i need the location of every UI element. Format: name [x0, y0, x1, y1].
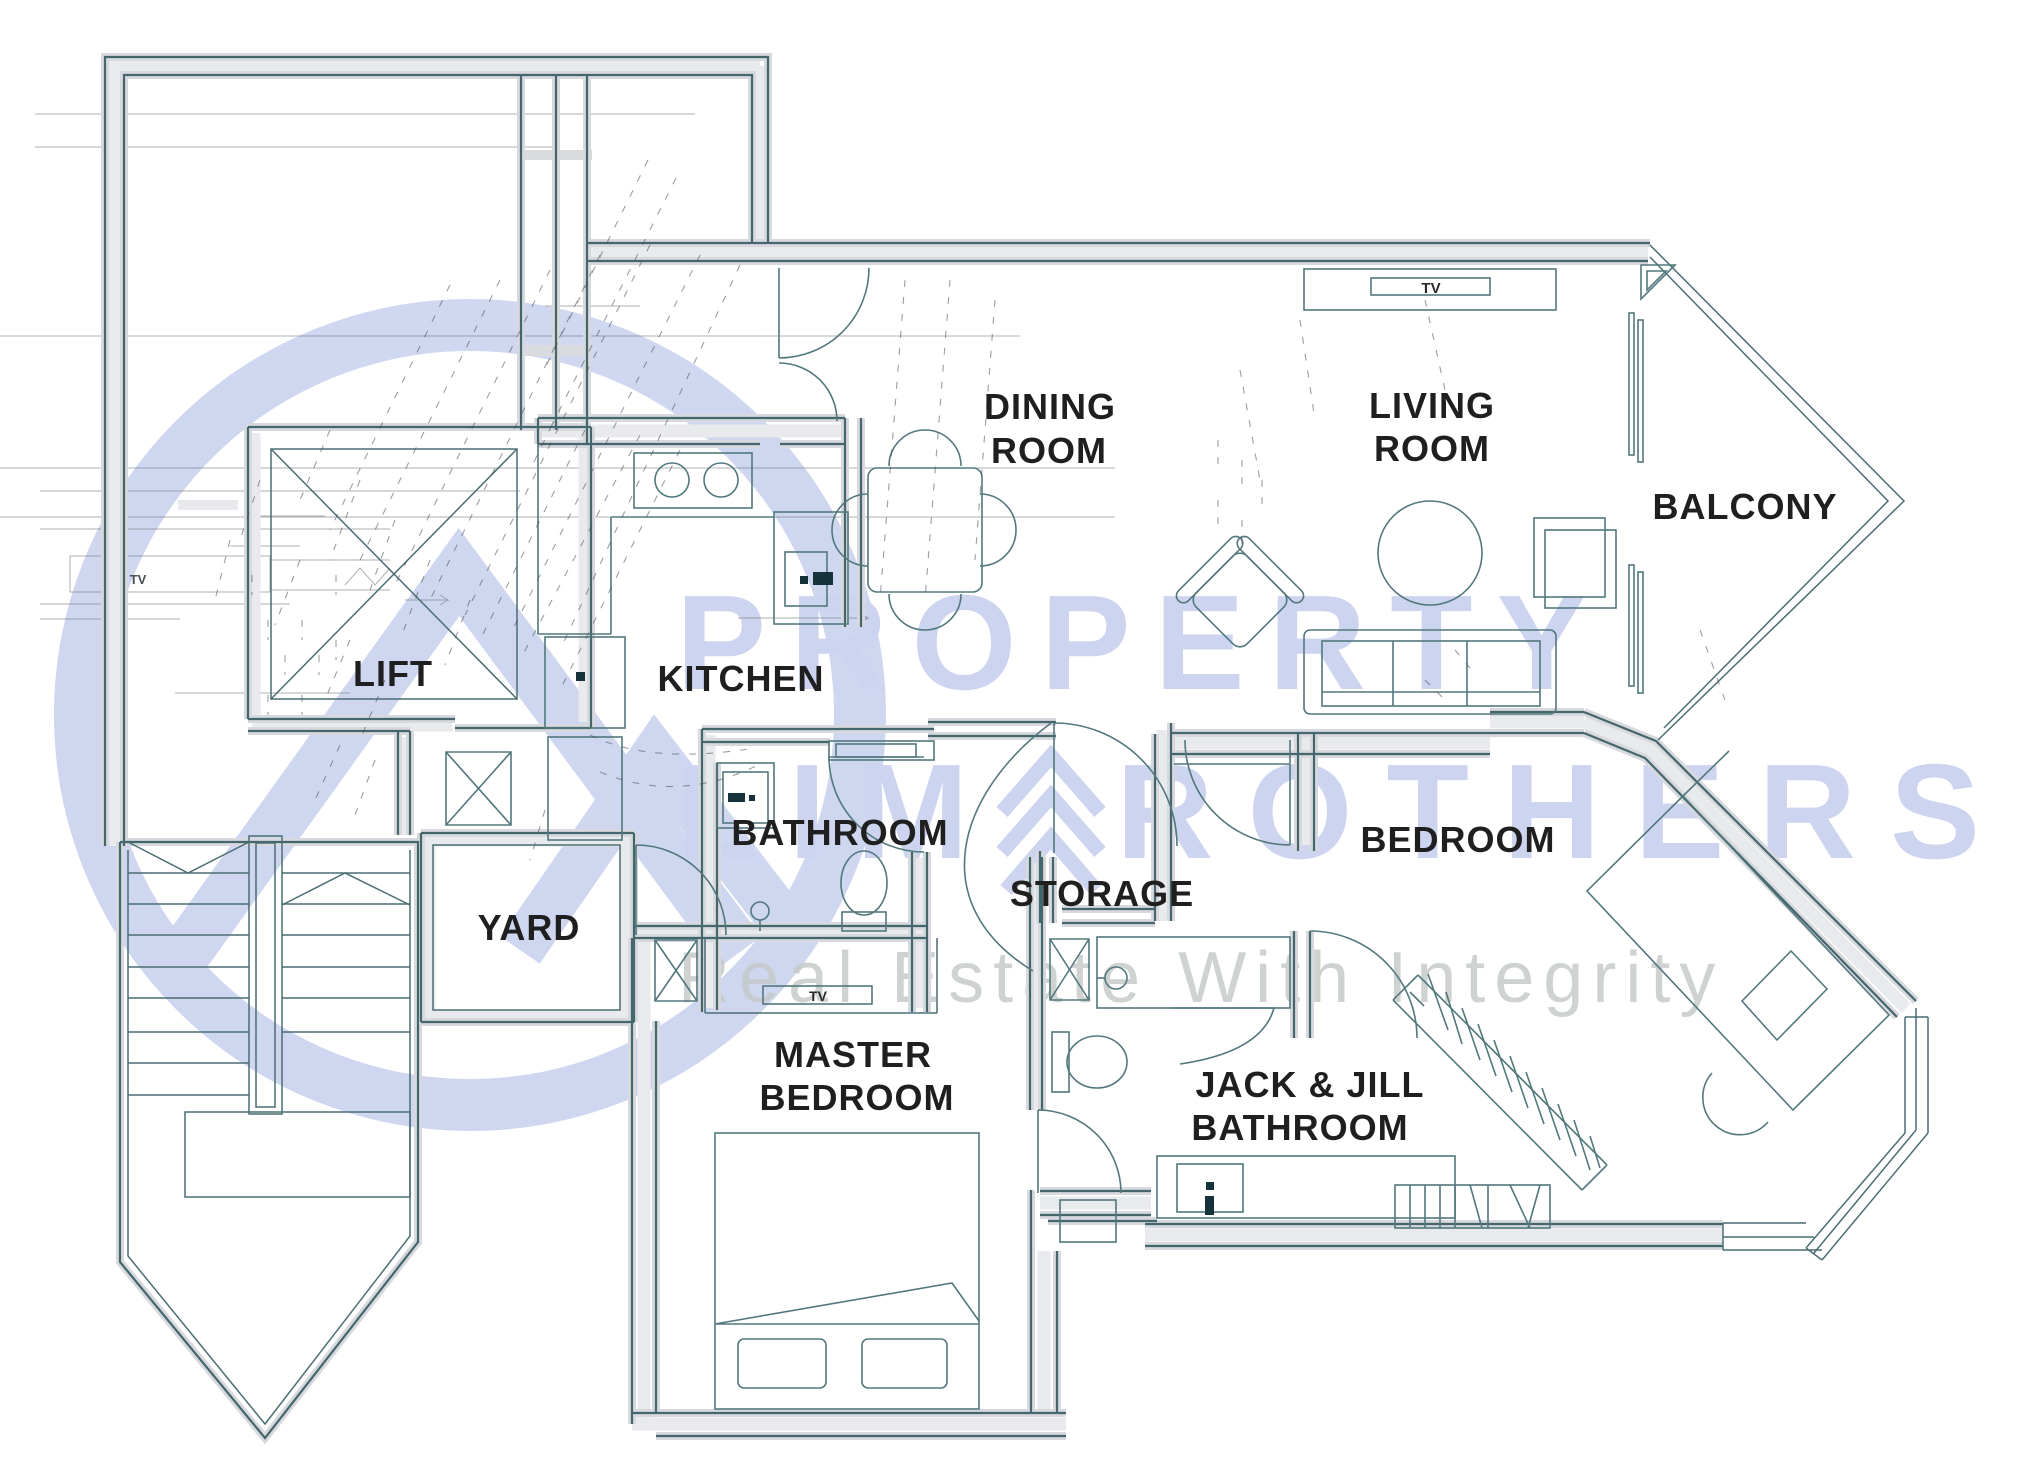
svg-text:TV: TV: [130, 572, 147, 587]
svg-text:ROOM: ROOM: [1374, 428, 1490, 469]
svg-text:LIFT: LIFT: [353, 653, 433, 694]
svg-text:JACK & JILL: JACK & JILL: [1195, 1064, 1424, 1105]
svg-text:LIVING: LIVING: [1369, 385, 1495, 426]
svg-text:STORAGE: STORAGE: [1010, 873, 1194, 914]
svg-text:MASTER: MASTER: [774, 1034, 932, 1075]
svg-text:TV: TV: [809, 988, 828, 1004]
svg-text:BEDROOM: BEDROOM: [1361, 819, 1556, 860]
svg-text:BALCONY: BALCONY: [1653, 486, 1838, 527]
svg-text:ROTHERS: ROTHERS: [1116, 736, 2014, 887]
svg-text:DINING: DINING: [984, 386, 1116, 427]
svg-text:BATHROOM: BATHROOM: [1191, 1107, 1408, 1148]
svg-text:ROOM: ROOM: [991, 430, 1107, 471]
svg-text:Real Estate With Integrity: Real Estate With Integrity: [678, 938, 1724, 1018]
svg-text:BATHROOM: BATHROOM: [731, 812, 948, 853]
svg-text:TV: TV: [1421, 280, 1440, 297]
svg-text:BEDROOM: BEDROOM: [760, 1077, 955, 1118]
svg-text:YARD: YARD: [478, 907, 581, 948]
svg-text:KITCHEN: KITCHEN: [658, 658, 825, 699]
